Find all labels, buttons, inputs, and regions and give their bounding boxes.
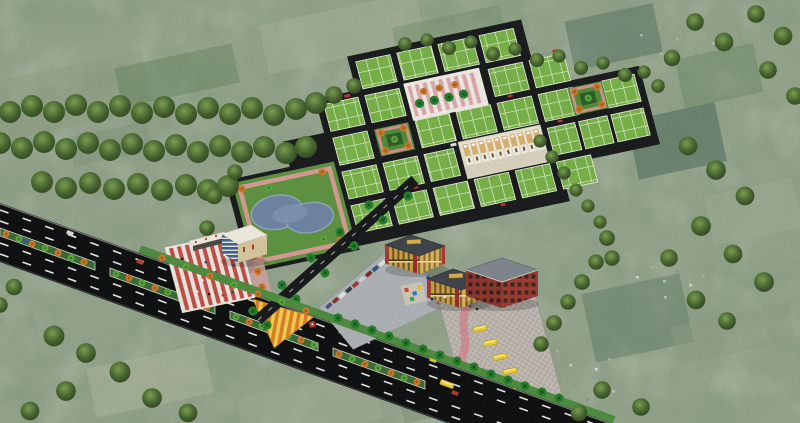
- render-canvas: [0, 0, 800, 423]
- film-grain-overlay: [0, 0, 800, 423]
- township-aerial-render: [0, 0, 800, 423]
